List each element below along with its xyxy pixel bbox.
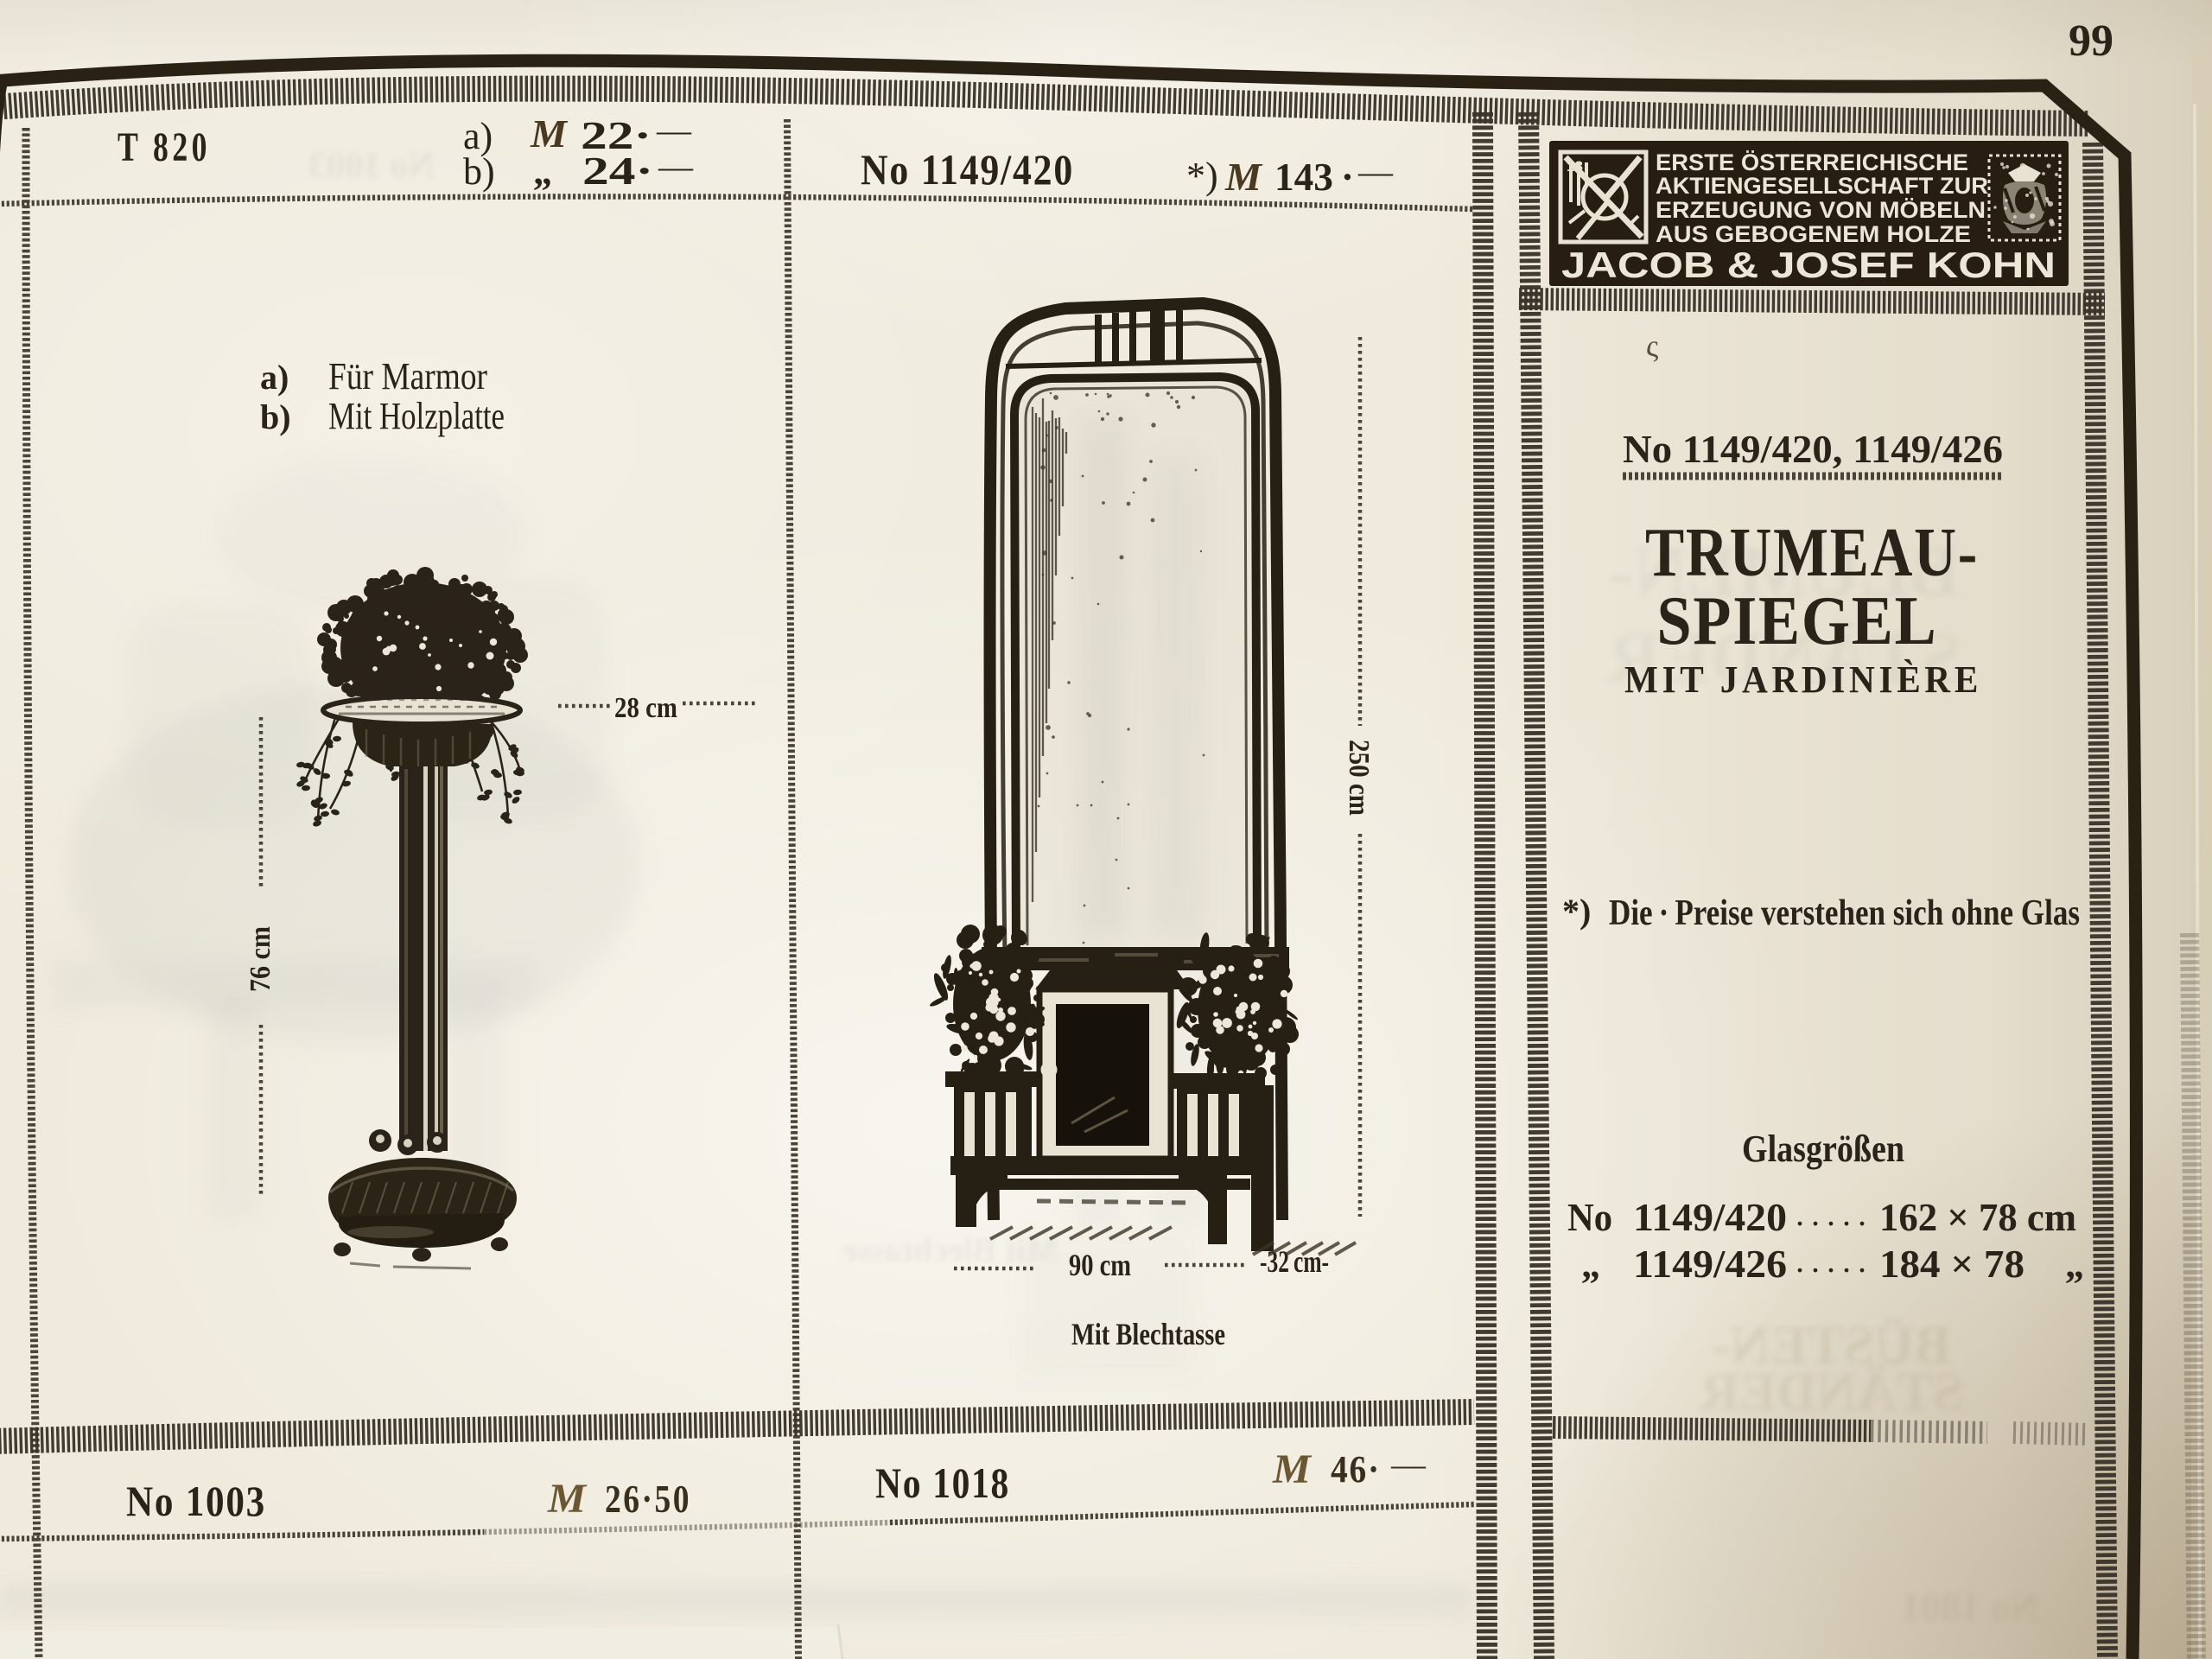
svg-text:Mit Holzplatte: Mit Holzplatte [328,395,505,437]
svg-text:JACOB & JOSEF KOHN: JACOB & JOSEF KOHN [1561,245,2056,285]
svg-text:MIT JARDINIÈRE: MIT JARDINIÈRE [1624,658,1982,701]
svg-text:ς: ς [1646,328,1658,363]
svg-text:M: M [1272,1446,1313,1492]
svg-text:TRUMEAU-: TRUMEAU- [1645,515,1979,591]
svg-text:Glasgrößen: Glasgrößen [1742,1128,1904,1170]
svg-text:. . . . .: . . . . . [1796,1241,1866,1280]
svg-text:„: „ [1581,1243,1600,1286]
svg-text:M: M [547,1476,588,1522]
svg-text:90 cm: 90 cm [1069,1248,1131,1282]
svg-text:„: „ [2065,1243,2084,1286]
svg-text:No 1149/420, 1149/426: No 1149/420, 1149/426 [1623,427,2003,471]
svg-text:No 1003: No 1003 [308,146,435,186]
svg-text:46·: 46· [1331,1448,1381,1491]
svg-text:M: M [530,111,569,156]
svg-text:—: — [656,111,692,149]
svg-text:ERZEUGUNG VON MÖBELN: ERZEUGUNG VON MÖBELN [1656,197,1986,223]
svg-text:a): a) [260,358,289,397]
svg-text:Mit Blechtasse: Mit Blechtasse [1071,1317,1225,1351]
svg-text:—: — [1390,1445,1427,1484]
svg-text:No 1149/420: No 1149/420 [861,145,1074,194]
svg-text:143 ·: 143 · [1274,155,1354,199]
svg-text:*): *) [1562,892,1591,931]
svg-text:Mit Blechtasse: Mit Blechtasse [842,1230,1058,1269]
svg-text:STÄNDER: STÄNDER [1699,1361,1964,1422]
svg-text:AKTIENGESELLSCHAFT ZUR: AKTIENGESELLSCHAFT ZUR [1656,173,1988,199]
svg-text:M: M [1224,155,1263,199]
svg-text:AUS GEBOGENEM HOLZE: AUS GEBOGENEM HOLZE [1656,221,1971,247]
svg-text:184 × 78: 184 × 78 [1879,1242,2024,1286]
svg-text:99: 99 [2069,16,2113,66]
svg-text:18: 18 [1567,158,1583,175]
svg-text:. . . . .: . . . . . [1796,1194,1866,1233]
svg-text:Die · Preise verstehen sich oh: Die · Preise verstehen sich ohne Glas [1609,893,2080,933]
svg-text:ERSTE ÖSTERREICHISCHE: ERSTE ÖSTERREICHISCHE [1656,149,1968,175]
svg-text:SPIEGEL: SPIEGEL [1657,583,1938,659]
svg-text:162 × 78 cm: 162 × 78 cm [1879,1195,2076,1239]
svg-text:b): b) [260,397,291,436]
svg-text:76 cm: 76 cm [245,926,276,992]
svg-text:T 820: T 820 [118,124,211,170]
svg-text:Für Marmor: Für Marmor [328,355,487,397]
svg-text:No: No [1567,1195,1612,1239]
svg-text:24·: 24· [582,149,653,193]
svg-text:—: — [1357,152,1394,191]
svg-text:28 cm: 28 cm [614,692,677,724]
svg-text:1149/426: 1149/426 [1633,1242,1787,1286]
svg-text:No 1018: No 1018 [875,1459,1010,1507]
svg-text:26·50: 26·50 [605,1477,691,1521]
svg-text:*): *) [1186,155,1218,197]
svg-text:250 cm: 250 cm [1343,740,1375,816]
svg-text:—: — [658,147,694,186]
svg-text:No 1003: No 1003 [126,1477,266,1525]
svg-text:b): b) [463,150,495,193]
svg-text:„: „ [533,150,552,193]
svg-text:1149/420: 1149/420 [1633,1195,1787,1239]
svg-text:No 1801: No 1801 [1901,1585,2039,1629]
